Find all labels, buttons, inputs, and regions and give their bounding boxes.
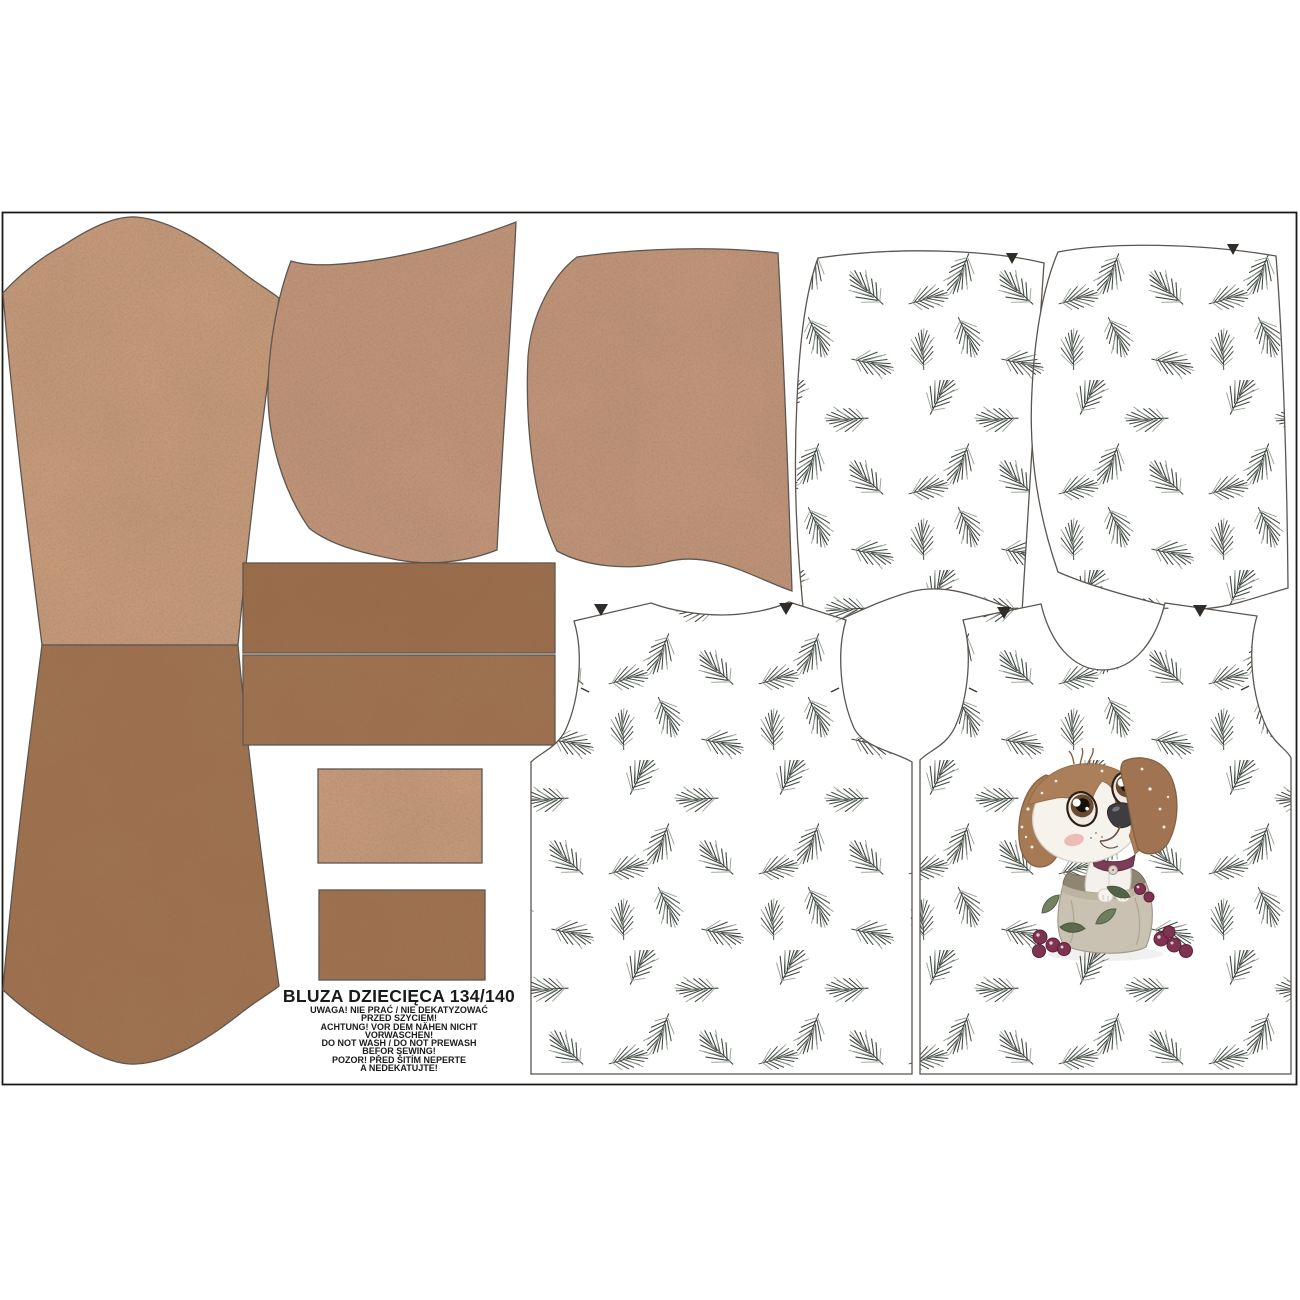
piece-back-panel [531, 602, 912, 1074]
sewing-pattern-panel: BLUZA DZIECIĘCA 134/140 UWAGA! NIE PRAĆ … [0, 0, 1300, 1300]
pattern-pieces-canvas [0, 0, 1300, 1300]
pattern-title: BLUZA DZIECIĘCA 134/140 [240, 986, 558, 1006]
piece-hood-left-pine [795, 251, 1044, 633]
piece-hood-right-pine [1031, 245, 1288, 609]
warning-line: A NEDEKATUJTE! [240, 1064, 558, 1072]
care-label: BLUZA DZIECIĘCA 134/140 UWAGA! NIE PRAĆ … [240, 986, 558, 1072]
collar-tag-dot [1112, 869, 1114, 871]
